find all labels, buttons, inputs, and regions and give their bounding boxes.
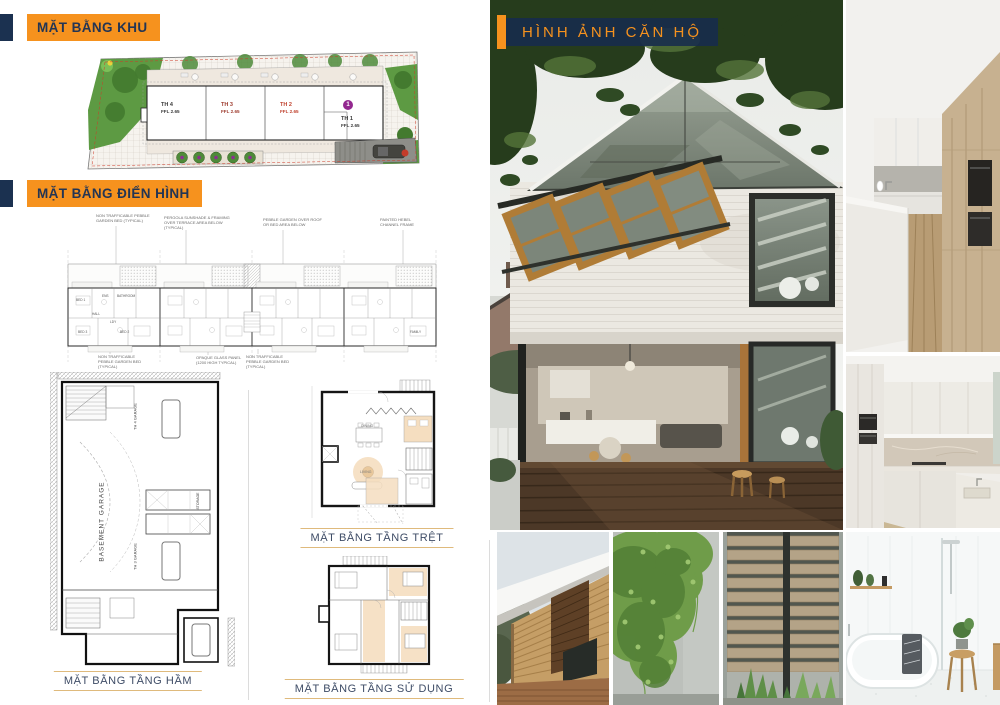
photo-timber-louvers xyxy=(723,532,843,705)
kitchen-wood-illustration xyxy=(846,0,1000,352)
presentation-board: MẶT BẰNG KHU MẶT BẰNG ĐIỂN HÌNH xyxy=(0,0,1000,705)
column-divider-left xyxy=(248,390,249,700)
site-plan-drawing: TH 4 FFL 2.65 TH 3 FFL 2.65 TH 2 FFL 2.6… xyxy=(85,50,420,172)
photo-kitchen-white xyxy=(846,356,1000,528)
site-unit-th2: TH 2 FFL 2.65 xyxy=(280,102,320,115)
room-label-bed1: BED 1 xyxy=(76,298,85,302)
typical-plan-svg xyxy=(58,212,443,377)
wood-facade-illustration xyxy=(497,532,609,705)
green-wall-illustration xyxy=(613,532,719,705)
photos-section-title: HÌNH ẢNH CĂN HỘ xyxy=(497,15,718,49)
ground-plan-drawing: DINING LIVING xyxy=(308,378,448,526)
title-accent-bar xyxy=(497,15,506,49)
basement-plan-drawing: BASEMENT GARAGE TH 4 GARAGE TH 3 GARAGE … xyxy=(50,372,235,667)
typical-note-bottom-3: NON TRAFFICABLE PEBBLE GARDEN BED (TYPIC… xyxy=(246,355,296,369)
ground-caption: MẶT BẰNG TẦNG TRỆT xyxy=(300,528,453,548)
upper-plan-drawing xyxy=(313,556,443,674)
title-accent-bar xyxy=(0,180,13,207)
room-label-family: FAMILY xyxy=(410,330,421,334)
bathroom-illustration xyxy=(846,532,1000,705)
photos-title-label: HÌNH ẢNH CĂN HỘ xyxy=(506,18,718,46)
typical-note-top-1: NON TRAFFICABLE PEBBLE GARDEN BED (TYPIC… xyxy=(96,214,152,224)
section-title-typical-plan: MẶT BẰNG ĐIỂN HÌNH xyxy=(0,180,202,207)
section-title-site-plan: MẶT BẰNG KHU xyxy=(0,14,160,41)
photo-wood-facade xyxy=(497,532,609,705)
room-label-bed3: BED 3 xyxy=(78,330,87,334)
room-label-hall: HALL xyxy=(92,312,100,316)
upper-caption: MẶT BẰNG TẦNG SỬ DỤNG xyxy=(285,679,464,699)
house-exterior-illustration xyxy=(490,0,843,530)
upper-plan-svg xyxy=(313,556,443,674)
column-divider-right xyxy=(489,540,490,702)
basement-garage-a-label: TH 4 GARAGE xyxy=(133,387,138,447)
photo-house-exterior xyxy=(490,0,843,530)
room-label-bathroom: BATHROOM xyxy=(117,294,135,298)
room-label-bed2: BED 2 xyxy=(120,330,129,334)
typical-note-bottom-1: NON TRAFFICABLE PEBBLE GARDEN BED (TYPIC… xyxy=(98,355,148,369)
basement-garage-b-label: TH 3 GARAGE xyxy=(133,527,138,587)
typical-plan-title: MẶT BẰNG ĐIỂN HÌNH xyxy=(27,180,202,207)
site-unit-th4: TH 4 FFL 2.65 xyxy=(161,102,201,115)
site-unit-marker: 1 xyxy=(343,100,353,110)
kitchen-white-illustration xyxy=(846,356,1000,528)
room-label-ens: ENS xyxy=(102,294,109,298)
site-unit-th3: TH 3 FFL 2.65 xyxy=(221,102,261,115)
typical-note-bottom-2: OPAQUE GLASS PANEL (1200 HIGH TYPICAL) xyxy=(196,356,242,366)
photo-kitchen-wood xyxy=(846,0,1000,352)
typical-plan-drawing: NON TRAFFICABLE PEBBLE GARDEN BED (TYPIC… xyxy=(58,212,443,377)
typical-note-top-4: PAINTED HEBEL CHANNEL FRAME xyxy=(380,218,426,228)
basement-area-label: BASEMENT GARAGE xyxy=(99,477,106,567)
photo-green-wall xyxy=(613,532,719,705)
ground-dining-label: DINING xyxy=(361,424,373,428)
ground-plan-svg xyxy=(308,378,448,526)
title-accent-bar xyxy=(0,14,13,41)
basement-plan-svg xyxy=(50,372,235,667)
timber-louvers-illustration xyxy=(723,532,843,705)
typical-note-top-3: PEBBLE GARDEN OVER ROOF OR BED AREA BELO… xyxy=(263,218,325,228)
basement-caption: MẶT BẰNG TẦNG HẦM xyxy=(54,671,202,691)
site-plan-title: MẶT BẰNG KHU xyxy=(27,14,160,41)
site-unit-th1: TH 1 FFL 2.65 xyxy=(341,116,381,129)
typical-note-top-2: PERGOLA SUNSHADE & FRAMING OVER TERRACE … xyxy=(164,216,242,230)
room-label-ldy: LDY xyxy=(110,320,116,324)
basement-storage-label: STORAGE xyxy=(196,471,200,531)
photo-bathroom xyxy=(846,532,1000,705)
ground-living-label: LIVING xyxy=(360,470,371,474)
